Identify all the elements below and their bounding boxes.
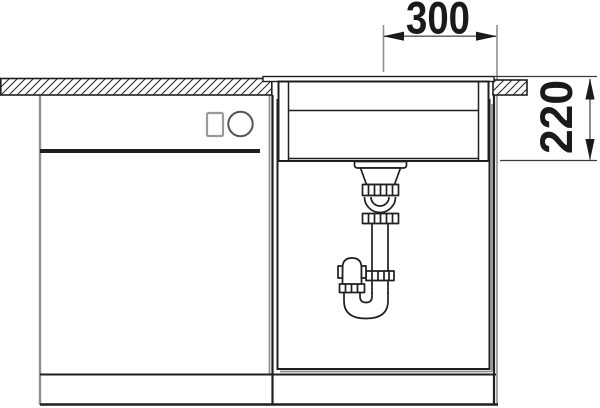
trap-u-bend <box>344 293 388 319</box>
cabinet-plinth <box>40 375 498 405</box>
bowl-outline <box>279 82 489 162</box>
dimension-300: 300 <box>383 0 497 44</box>
drain-funnel <box>361 168 401 185</box>
dimension-300-label: 300 <box>406 0 470 44</box>
dimension-220-label: 220 <box>531 80 582 154</box>
countertop-right <box>493 80 527 95</box>
arrow-up-icon <box>585 79 594 100</box>
outlet-tab-right <box>362 266 367 278</box>
technical-drawing-canvas: 300 220 <box>0 0 600 408</box>
arrow-right-icon <box>476 32 497 41</box>
outlet-nut <box>340 284 365 293</box>
outlet-tab-left <box>338 266 343 278</box>
drain-nut <box>363 185 399 196</box>
arrow-down-icon <box>585 139 594 160</box>
trap-inlet-nut <box>366 271 394 281</box>
base-cabinet-left <box>40 95 260 405</box>
countertop-left <box>1 79 272 96</box>
arrow-left-icon <box>383 32 404 41</box>
drain-flange <box>355 162 407 169</box>
wall-outlet-cap <box>343 258 362 284</box>
pipe-coupling <box>363 214 399 224</box>
control-knob-icon <box>228 112 252 136</box>
sink-section-drawing: 300 220 <box>0 0 600 408</box>
drain-and-siphon <box>338 162 407 319</box>
control-square-icon <box>207 113 223 136</box>
overflow-loop <box>365 197 396 212</box>
